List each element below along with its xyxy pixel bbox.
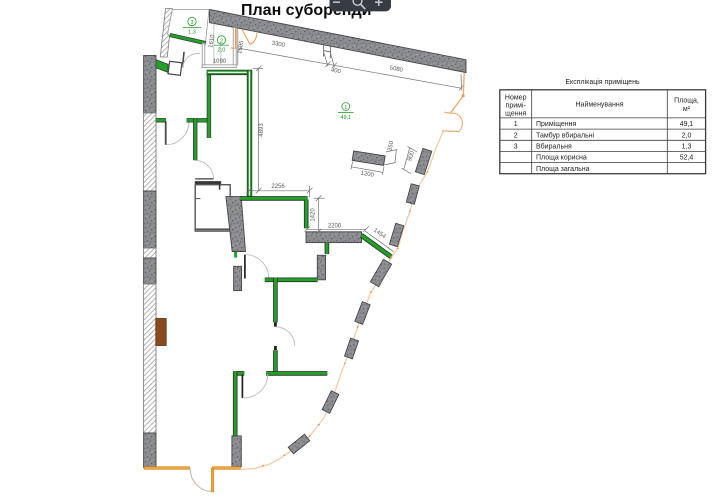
svg-text:1: 1 bbox=[344, 105, 347, 111]
svg-text:Площа,: Площа, bbox=[674, 98, 699, 105]
svg-text:Експлікація приміщень: Експлікація приміщень bbox=[565, 78, 640, 86]
svg-text:Площа корисна: Площа корисна bbox=[536, 155, 587, 162]
svg-text:52,4: 52,4 bbox=[680, 155, 694, 162]
svg-text:2,0: 2,0 bbox=[682, 132, 692, 139]
svg-text:примі-: примі- bbox=[506, 102, 527, 110]
svg-text:1090: 1090 bbox=[213, 59, 227, 65]
svg-text:3: 3 bbox=[514, 144, 518, 151]
svg-text:Тамбур вбиральні: Тамбур вбиральні bbox=[536, 131, 595, 139]
svg-text:2200: 2200 bbox=[328, 223, 342, 229]
svg-text:3: 3 bbox=[190, 20, 193, 26]
svg-text:4893: 4893 bbox=[259, 123, 265, 137]
svg-text:2,0: 2,0 bbox=[218, 48, 226, 54]
svg-text:Вбиральня: Вбиральня bbox=[536, 143, 572, 151]
svg-text:2: 2 bbox=[220, 39, 223, 45]
svg-text:Найменування: Найменування bbox=[576, 101, 624, 109]
svg-text:2256: 2256 bbox=[271, 184, 285, 190]
svg-text:49,1: 49,1 bbox=[340, 115, 351, 121]
svg-text:2: 2 bbox=[514, 132, 518, 139]
svg-text:щення: щення bbox=[505, 111, 526, 118]
svg-text:1420: 1420 bbox=[310, 208, 316, 222]
svg-text:1: 1 bbox=[514, 121, 518, 128]
svg-text:Приміщення: Приміщення bbox=[536, 120, 577, 128]
svg-text:м²: м² bbox=[683, 106, 691, 113]
svg-text:1,3: 1,3 bbox=[682, 144, 692, 151]
svg-text:Площа загальна: Площа загальна bbox=[536, 166, 590, 173]
svg-text:49,1: 49,1 bbox=[680, 121, 694, 128]
svg-text:1,3: 1,3 bbox=[188, 30, 196, 36]
svg-text:Номер: Номер bbox=[505, 95, 527, 102]
